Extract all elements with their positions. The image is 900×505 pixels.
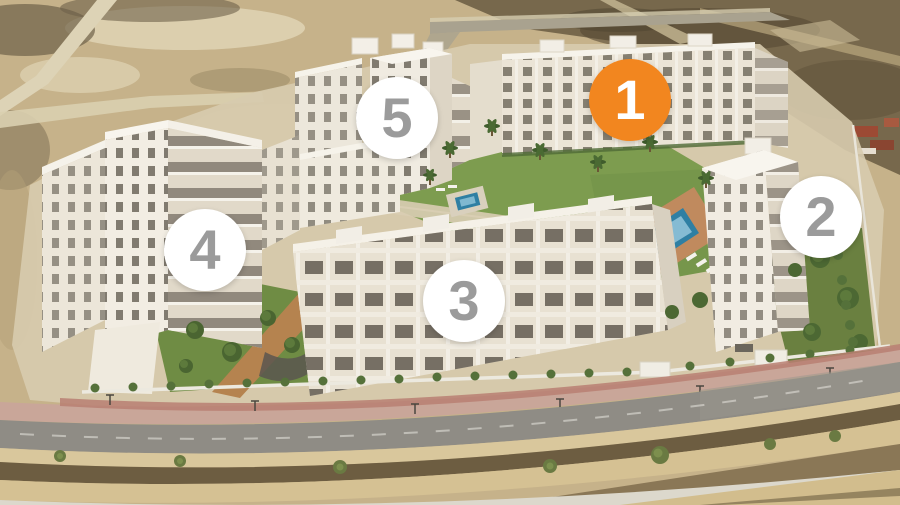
building-marker-4-label: 4 <box>189 222 220 278</box>
building-marker-5[interactable]: 5 <box>356 77 438 159</box>
building-marker-2[interactable]: 2 <box>780 176 862 258</box>
building-marker-5-label: 5 <box>381 90 412 146</box>
building-marker-3-label: 3 <box>448 273 479 329</box>
building-marker-2-label: 2 <box>805 189 836 245</box>
aerial-render-stage: 1 2 3 4 5 <box>0 0 900 505</box>
building-marker-3[interactable]: 3 <box>423 260 505 342</box>
aerial-render <box>0 0 900 505</box>
building-marker-1-label: 1 <box>614 72 645 128</box>
building-marker-4[interactable]: 4 <box>164 209 246 291</box>
building-marker-1[interactable]: 1 <box>589 59 671 141</box>
